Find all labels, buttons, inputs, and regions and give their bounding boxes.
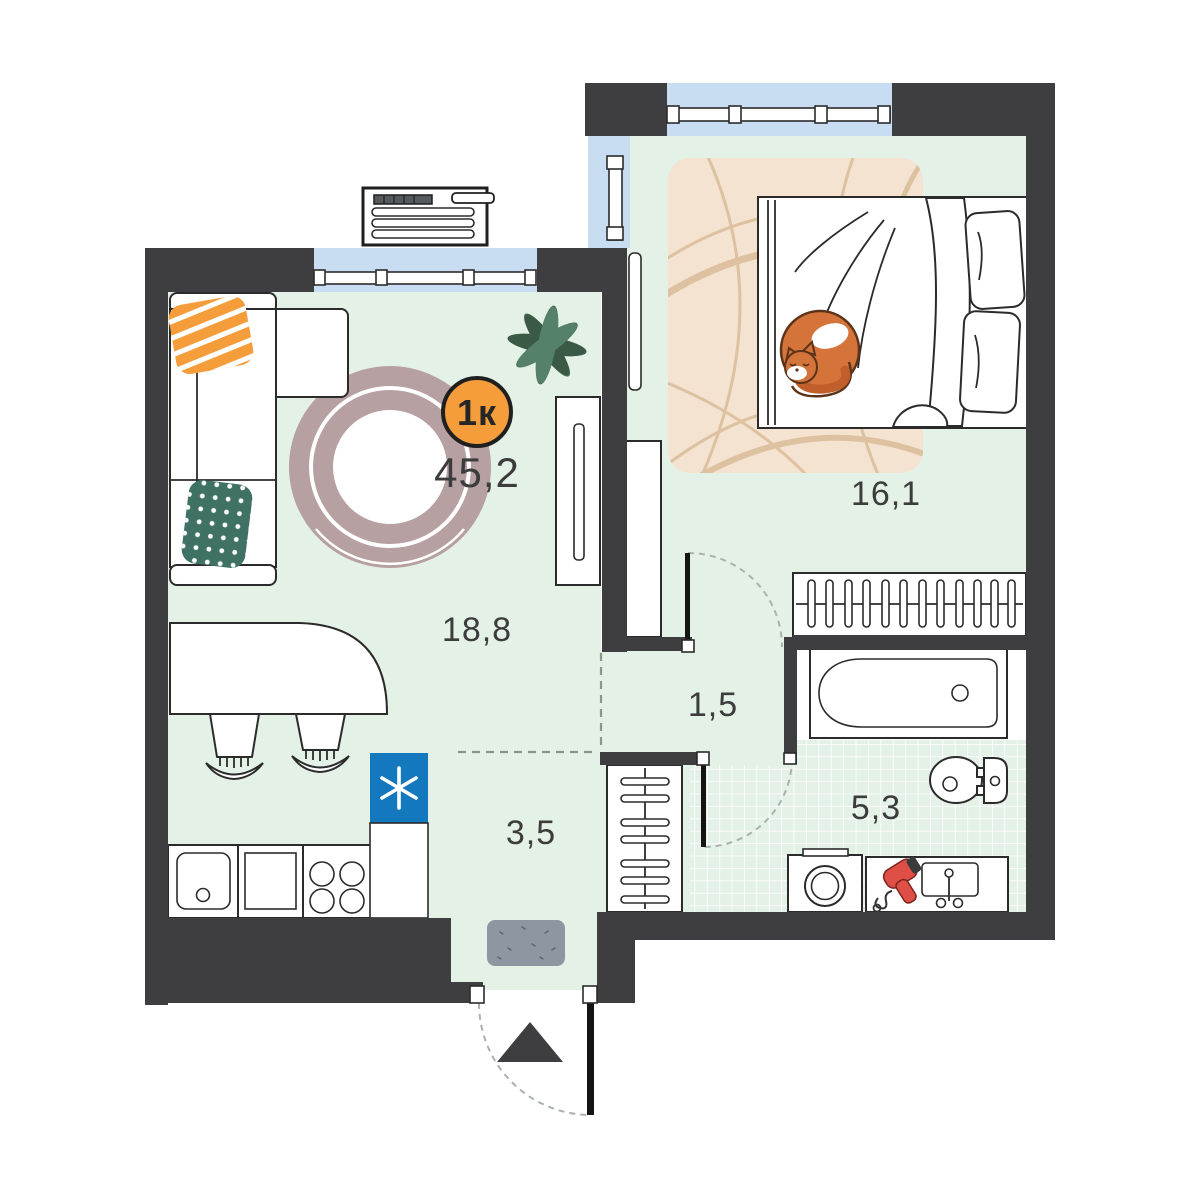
window-living: [314, 248, 537, 292]
ac-unit: [363, 188, 494, 245]
washing-machine: [788, 849, 862, 912]
hanger-closet-bedroom: [793, 573, 1026, 636]
door-entry: [470, 986, 597, 1115]
tall-cabinet: [556, 397, 600, 585]
fridge-freezer: [370, 753, 428, 918]
floor-plan-page: 1к 45,2 18,8 16,1 1,5 3,5 5,3: [0, 0, 1200, 1200]
toilet: [930, 757, 1007, 803]
entry-area: 3,5: [506, 814, 556, 852]
bathroom-area: 5,3: [851, 789, 901, 827]
pillow: [959, 311, 1020, 414]
hall-area: 1,5: [688, 686, 738, 724]
living-room-area: 18,8: [442, 611, 512, 649]
window-bedroom-side: [588, 136, 630, 248]
kitchen-sink: [168, 845, 238, 918]
hanger-closet-hall: [607, 765, 682, 912]
stove: [303, 845, 372, 918]
bathroom-counter: [866, 854, 1008, 912]
floor-plan: 1к 45,2 18,8 16,1 1,5 3,5 5,3: [0, 0, 1200, 1200]
bathtub: [810, 649, 1007, 738]
radiator: [629, 253, 641, 390]
counter: [238, 845, 303, 918]
apartment-type-badge: 1к: [443, 378, 511, 446]
bedroom-area: 16,1: [851, 475, 921, 513]
pillow: [965, 210, 1026, 310]
doormat: [487, 920, 565, 966]
total-area-label: 45,2: [434, 449, 520, 496]
pillow-teal: [180, 478, 254, 569]
entrance-arrow: [497, 1022, 563, 1062]
window-bedroom-top: [667, 83, 892, 136]
badge-label: 1к: [457, 392, 497, 433]
